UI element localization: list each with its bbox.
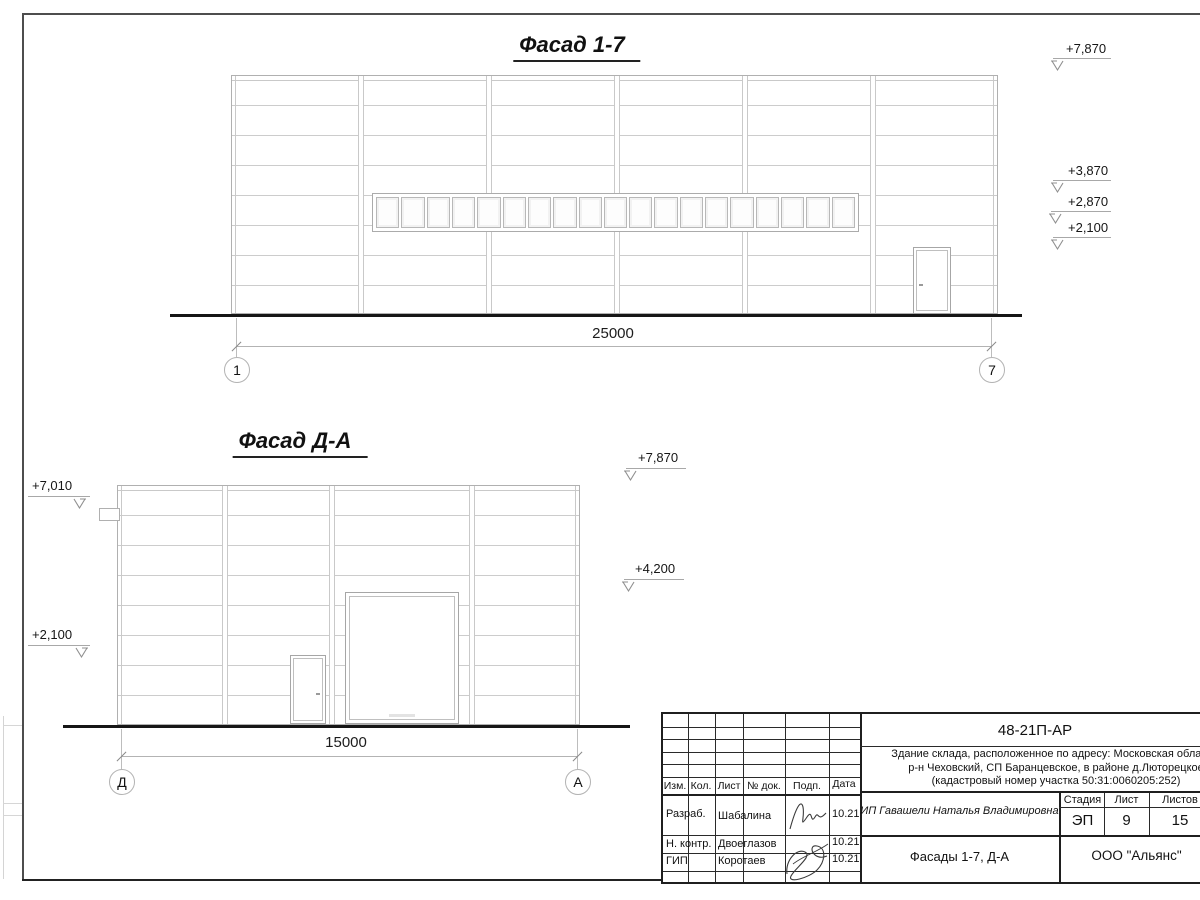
description-line: (кадастровый номер участка 50:31:0060205… [862, 775, 1200, 789]
window-pane [781, 197, 804, 228]
column-line [222, 486, 228, 724]
axis-bubble-d: Д [109, 769, 135, 795]
dimension-value: 25000 [592, 325, 634, 342]
axis-bubble-1: 1 [224, 357, 250, 383]
elevation-leader [1053, 237, 1111, 238]
elevation-arrow-icon [1051, 182, 1064, 194]
side-door [290, 655, 326, 724]
elevation-value: +3,870 [1068, 163, 1108, 178]
dimension-line [236, 346, 992, 347]
dimension-line [121, 756, 578, 757]
window-pane [806, 197, 829, 228]
elevation-value: +7,870 [638, 450, 678, 465]
door-handle [919, 284, 923, 286]
window-pane [553, 197, 576, 228]
gate [345, 592, 459, 724]
corner-line [235, 76, 236, 313]
signature [787, 797, 829, 835]
entrance-door [913, 247, 951, 314]
corner-line [993, 76, 994, 313]
corner-line [575, 486, 576, 724]
elevation-arrow-icon [75, 647, 88, 659]
elevation-arrow-icon [1051, 239, 1064, 251]
axis-label: А [573, 774, 582, 790]
name-ncontrol: Двоеглазов [718, 838, 776, 850]
name-developer: Шабалина [718, 810, 771, 822]
gate-threshold [389, 714, 415, 717]
parapet-line [118, 490, 579, 491]
window-pane [654, 197, 677, 228]
window-pane [604, 197, 627, 228]
margin-divider [3, 716, 4, 879]
window-pane [401, 197, 424, 228]
elevation-value: +7,870 [1066, 41, 1106, 56]
facade-d-a-title: Фасад Д-А [233, 428, 368, 458]
window-pane [756, 197, 779, 228]
elevation-arrow-icon [73, 498, 86, 510]
column-line [329, 486, 335, 724]
window-pane [452, 197, 475, 228]
sheet-value: 9 [1104, 812, 1149, 829]
extension-line [577, 729, 578, 769]
column-line [358, 76, 364, 313]
extension-line [991, 318, 992, 357]
window-pane [528, 197, 551, 228]
window-pane [477, 197, 500, 228]
col-header-kol: Кол. [691, 780, 712, 792]
window-pane [376, 197, 399, 228]
date-developer: 10.21 [832, 808, 860, 820]
elevation-leader [626, 468, 686, 469]
elevation-value: +2,100 [1068, 220, 1108, 235]
elevation-value: +7,010 [32, 478, 72, 493]
col-header-list: Лист [718, 780, 741, 792]
sheet-label: Лист [1104, 794, 1149, 806]
door-handle [316, 693, 320, 695]
col-header-data: Дата [832, 778, 855, 790]
project-description: Здание склада, расположенное по адресу: … [862, 748, 1200, 789]
signature [783, 834, 831, 884]
column-line [870, 76, 876, 313]
description-line: Здание склада, расположенное по адресу: … [862, 748, 1200, 762]
facade-1-7-drawing [231, 75, 998, 314]
elevation-leader [1053, 58, 1111, 59]
axis-bubble-7: 7 [979, 357, 1005, 383]
facade-1-7-title: Фасад 1-7 [513, 32, 640, 62]
sheets-value: 15 [1149, 812, 1200, 829]
window-pane [503, 197, 526, 228]
elevation-arrow-icon [1051, 60, 1064, 72]
window-pane [680, 197, 703, 228]
project-code: 48-21П-АР [860, 722, 1200, 739]
axis-label: 1 [233, 362, 241, 378]
role-ncontrol: Н. контр. [666, 838, 711, 850]
extension-line [236, 318, 237, 357]
frame-top [22, 13, 1200, 15]
margin-mark [3, 803, 22, 804]
canopy [99, 508, 120, 521]
door-leaf [916, 250, 948, 311]
description-line: р-н Чеховский, СП Баранцевское, в районе… [862, 762, 1200, 776]
elevation-leader [28, 645, 90, 646]
elevation-leader [28, 496, 90, 497]
window-pane [730, 197, 753, 228]
elevation-value: +2,100 [32, 627, 72, 642]
window-pane [705, 197, 728, 228]
facade-d-a-drawing [117, 485, 580, 725]
elevation-arrow-icon [1049, 213, 1062, 225]
frame-left [22, 13, 24, 881]
client-name: ИП Гавашели Наталья Владимировна [860, 805, 1059, 817]
elevation-leader [1051, 211, 1111, 212]
col-header-doc: № док. [747, 780, 781, 792]
date-gip: 10.21 [832, 853, 860, 865]
company-name: ООО "Альянс" [1059, 848, 1200, 863]
window-pane [832, 197, 855, 228]
name-gip: Коротаев [718, 855, 766, 867]
window-pane [427, 197, 450, 228]
column-line [469, 486, 475, 724]
col-header-podp: Подп. [793, 780, 821, 792]
window-pane [629, 197, 652, 228]
ground-line-1-7 [170, 314, 1022, 317]
axis-bubble-a: А [565, 769, 591, 795]
role-gip: ГИП [666, 855, 688, 867]
ground-line-d-a [63, 725, 630, 728]
door-leaf [293, 658, 323, 721]
window-band [372, 193, 859, 232]
elevation-value: +4,200 [635, 561, 675, 576]
stage-label: Стадия [1061, 794, 1104, 806]
elevation-leader [1053, 180, 1111, 181]
sheet-title: Фасады 1-7, Д-А [860, 849, 1059, 864]
extension-line [121, 729, 122, 769]
elevation-leader [624, 579, 684, 580]
elevation-arrow-icon [622, 581, 635, 593]
date-ncontrol: 10.21 [832, 836, 860, 848]
axis-label: Д [117, 774, 126, 790]
role-developer: Разраб. [666, 808, 706, 820]
elevation-value: +2,870 [1068, 194, 1108, 209]
gate-leaf [349, 596, 455, 720]
col-header-izm: Изм. [664, 780, 687, 792]
elevation-arrow-icon [624, 470, 637, 482]
margin-mark [3, 725, 22, 726]
drawing-sheet: { "f1": { "title": "Фасад 1-7", "dim": "… [0, 0, 1200, 900]
window-pane [579, 197, 602, 228]
title-block: Изм. Кол. Лист № док. Подп. Дата Разраб.… [661, 712, 1200, 884]
corner-line [121, 486, 122, 724]
sheets-label: Листов [1149, 794, 1200, 806]
stage-value: ЭП [1061, 812, 1104, 829]
axis-label: 7 [988, 362, 996, 378]
dimension-value: 15000 [325, 734, 367, 751]
margin-mark [3, 815, 22, 816]
